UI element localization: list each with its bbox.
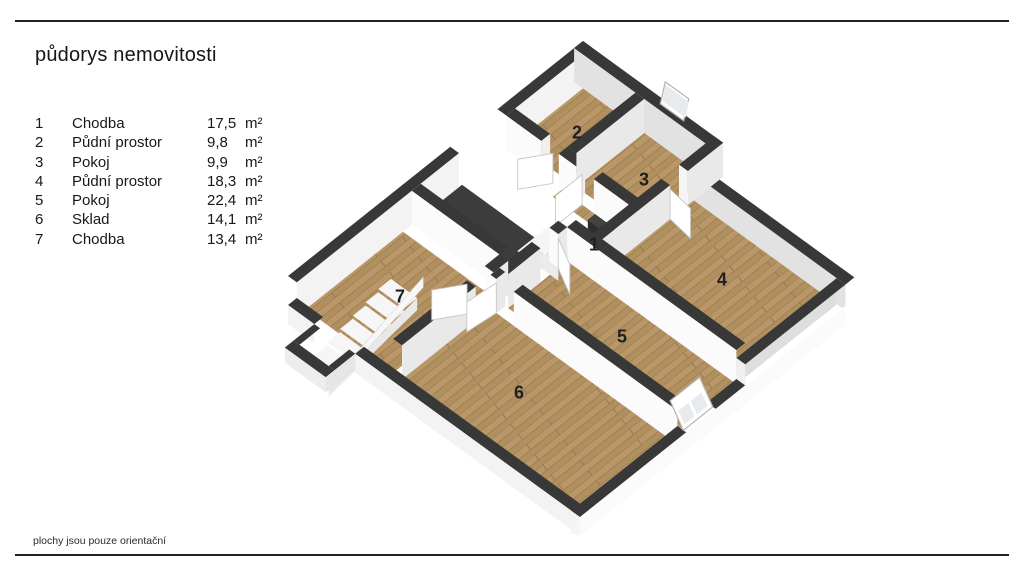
wall-cap [550, 228, 559, 268]
plan-label-room-3: 3 [639, 170, 649, 191]
plan-label-room-7: 7 [395, 287, 405, 308]
footer-disclaimer: plochy jsou pouze orientační [33, 535, 166, 547]
floorplan-render [0, 0, 1024, 576]
wall-cap [496, 272, 505, 313]
plan-label-room-4: 4 [717, 270, 727, 291]
bottom-divider-line [15, 554, 1009, 556]
floorplan-geometry [285, 41, 855, 536]
plan-label-room-1: 1 [589, 235, 599, 256]
plan-label-room-6: 6 [514, 383, 524, 404]
door-leaf [518, 153, 553, 189]
page: půdorys nemovitosti 1Chodba17,5m² 2Půdní… [0, 0, 1024, 576]
floorplan-3d: 1 2 3 4 5 6 7 [0, 0, 1024, 576]
nw-wall-cap [497, 109, 506, 149]
door-leaf [432, 284, 467, 320]
plan-label-room-2: 2 [572, 123, 582, 144]
plan-label-room-5: 5 [617, 327, 627, 348]
